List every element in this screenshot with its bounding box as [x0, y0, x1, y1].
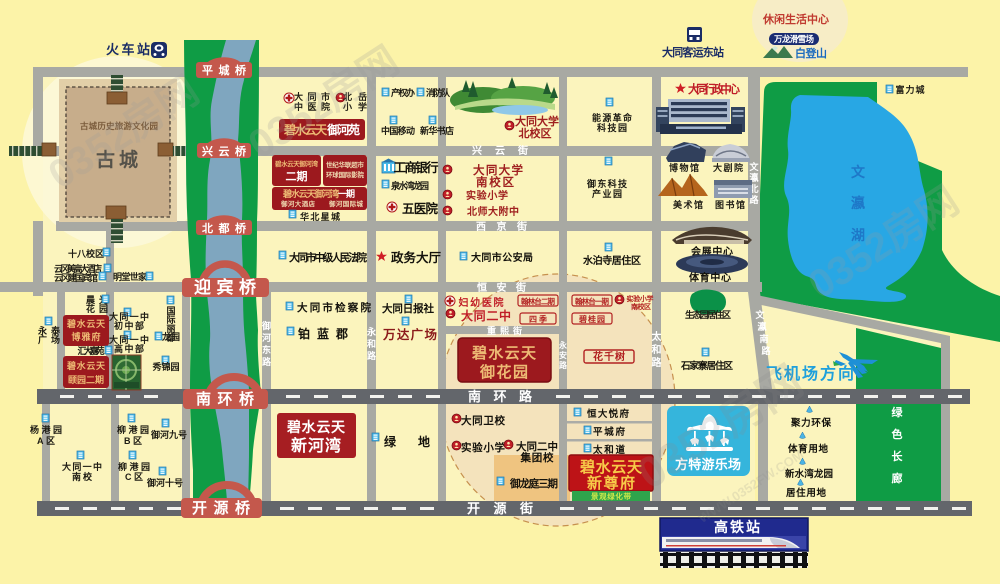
svg-text:新河湾: 新河湾: [291, 436, 341, 455]
svg-text:永和路: 永和路: [366, 326, 377, 361]
svg-text:大同大学: 大同大学: [473, 163, 524, 177]
svg-text:十八校区: 十八校区: [68, 248, 104, 259]
svg-text:瀛: 瀛: [850, 195, 865, 211]
svg-text:政务大厅: 政务大厅: [391, 250, 441, 265]
svg-text:实验小学: 实验小学: [627, 294, 654, 303]
svg-text:迎宾桥: 迎宾桥: [194, 277, 257, 297]
svg-text:铂蓝郡: 铂蓝郡: [298, 326, 354, 341]
svg-text:博雅府: 博雅府: [72, 331, 101, 342]
svg-text:汇大嘉苑: 汇大嘉苑: [78, 345, 105, 356]
svg-text:碧水云天: 碧水云天: [66, 318, 106, 329]
svg-text:翰林台二期: 翰林台二期: [521, 296, 556, 306]
svg-text:颐园二期: 颐园二期: [68, 374, 104, 385]
svg-text:御河九号: 御河九号: [150, 429, 187, 440]
svg-text:B区: B区: [124, 436, 142, 446]
svg-text:翰林台一期: 翰林台一期: [575, 296, 610, 306]
svg-text:开源桥: 开源桥: [192, 499, 251, 517]
svg-text:太和道: 太和道: [593, 444, 625, 456]
svg-text:大剧院: 大剧院: [713, 162, 743, 173]
svg-text:大同客运东站: 大同客运东站: [662, 45, 724, 59]
svg-text:新水湾龙园: 新水湾龙园: [785, 468, 833, 480]
svg-text:华北星城: 华北星城: [300, 211, 340, 222]
svg-text:御东科技: 御东科技: [586, 178, 628, 189]
svg-text:恒大悦府: 恒大悦府: [587, 408, 629, 420]
svg-text:北都桥: 北都桥: [202, 221, 247, 235]
svg-text:南校区: 南校区: [476, 175, 515, 189]
svg-text:富力城: 富力城: [896, 84, 925, 95]
svg-text:西京街: 西京街: [476, 220, 536, 233]
svg-text:兴云街: 兴云街: [472, 144, 538, 157]
svg-text:大同行政中心: 大同行政中心: [688, 82, 741, 96]
svg-text:兴云桥: 兴云桥: [202, 144, 247, 158]
svg-text:御河国际城: 御河国际城: [328, 199, 364, 208]
svg-text:世纪华联超市: 世纪华联超市: [326, 160, 365, 169]
svg-text:实验小学: 实验小学: [461, 441, 506, 454]
svg-text:高中部: 高中部: [114, 343, 144, 354]
svg-text:美术馆: 美术馆: [673, 199, 703, 210]
svg-text:北师大附中: 北师大附中: [467, 205, 519, 218]
svg-text:中国移动: 中国移动: [381, 125, 415, 136]
svg-text:大同日报社: 大同日报社: [382, 302, 435, 315]
svg-text:龙园: 龙园: [161, 331, 180, 342]
svg-text:明堂世家: 明堂世家: [113, 271, 148, 282]
svg-text:生态园居住区: 生态园居住区: [685, 309, 731, 320]
svg-text:石家寨居住区: 石家寨居住区: [680, 360, 733, 372]
svg-text:高铁站: 高铁站: [714, 519, 760, 535]
svg-text:C区: C区: [125, 472, 143, 482]
svg-text:大同大学: 大同大学: [515, 114, 559, 128]
svg-text:御河十号: 御河十号: [146, 477, 183, 488]
svg-text:五医院: 五医院: [402, 201, 438, 216]
svg-text:开源街: 开源街: [467, 501, 545, 516]
svg-text:聚力环保: 聚力环保: [790, 417, 831, 429]
svg-text:御龙庭三期: 御龙庭三期: [509, 477, 558, 490]
svg-text:集团校: 集团校: [520, 451, 555, 464]
svg-text:四季: 四季: [529, 314, 548, 324]
svg-text:产业园: 产业园: [592, 188, 622, 199]
svg-text:水泊寺居住区: 水泊寺居住区: [582, 254, 641, 267]
svg-text:杨港园: 杨港园: [30, 424, 62, 435]
svg-text:御河大酒店: 御河大酒店: [280, 199, 316, 208]
svg-text:能源革命: 能源革命: [592, 112, 633, 123]
svg-text:产权办: 产权办: [391, 87, 415, 98]
svg-text:大同市中级人民法院: 大同市中级人民法院: [289, 251, 368, 264]
svg-text:大同二中: 大同二中: [461, 308, 511, 323]
svg-text:南环桥: 南环桥: [196, 390, 255, 408]
svg-text:初中部: 初中部: [114, 320, 144, 331]
svg-text:科技园: 科技园: [597, 122, 627, 133]
svg-text:御花园: 御花园: [479, 363, 528, 381]
svg-text:白登山: 白登山: [795, 46, 827, 60]
svg-text:博物馆: 博物馆: [669, 162, 699, 173]
svg-text:新尊府: 新尊府: [587, 474, 635, 492]
svg-text:碧水云天: 碧水云天: [66, 360, 106, 371]
svg-text:南校: 南校: [72, 471, 93, 482]
svg-text:绿: 绿: [384, 434, 397, 449]
svg-text:云冈建国宾馆: 云冈建国宾馆: [54, 272, 98, 283]
svg-text:消防队: 消防队: [426, 87, 451, 98]
svg-text:文: 文: [851, 164, 866, 180]
svg-text:南校区: 南校区: [631, 302, 651, 311]
svg-text:实验小学: 实验小学: [466, 189, 508, 202]
svg-text:环球国际影院: 环球国际影院: [326, 170, 365, 179]
svg-text:秀锦园: 秀锦园: [152, 361, 180, 372]
svg-text:景观绿化带: 景观绿化带: [591, 491, 632, 501]
svg-text:居住用地: 居住用地: [786, 487, 826, 499]
svg-text:恒安街: 恒安街: [477, 281, 535, 294]
svg-text:泉水湾龙园: 泉水湾龙园: [390, 180, 429, 191]
svg-text:碧水云天御河湾: 碧水云天御河湾: [274, 159, 319, 168]
svg-text:碧桂园: 碧桂园: [578, 314, 605, 324]
svg-text:南环路: 南环路: [468, 389, 544, 404]
svg-text:重熙街: 重熙街: [487, 325, 527, 336]
svg-text:大同卫校: 大同卫校: [461, 414, 506, 427]
svg-text:火车站: 火车站: [106, 42, 150, 57]
svg-text:体育中心: 体育中心: [689, 271, 731, 284]
svg-text:工商银行: 工商银行: [394, 160, 439, 175]
svg-text:休闲生活中心: 休闲生活中心: [762, 12, 829, 26]
svg-text:碧水云天御河湾一期: 碧水云天御河湾一期: [282, 188, 355, 199]
svg-text:碧水云天: 碧水云天: [286, 419, 346, 435]
svg-text:北校区: 北校区: [519, 126, 552, 140]
svg-text:地: 地: [418, 434, 430, 449]
svg-text:A区: A区: [37, 436, 55, 446]
svg-text:大同市公安局: 大同市公安局: [471, 251, 533, 264]
svg-text:图书馆: 图书馆: [715, 199, 745, 210]
svg-text:花千树: 花千树: [593, 350, 625, 363]
svg-text:万龙滑雪场: 万龙滑雪场: [773, 34, 814, 44]
svg-text:柳港园: 柳港园: [117, 424, 149, 435]
svg-text:新华书店: 新华书店: [420, 125, 454, 136]
svg-text:大同一中: 大同一中: [62, 461, 102, 472]
svg-text:平城桥: 平城桥: [202, 63, 247, 77]
svg-text:柳港园: 柳港园: [118, 461, 150, 472]
svg-text:平城府: 平城府: [593, 426, 625, 438]
svg-text:太和路: 太和路: [651, 330, 663, 369]
svg-text:二期: 二期: [286, 169, 308, 183]
svg-text:永安路: 永安路: [558, 340, 568, 370]
svg-text:碧水云天: 碧水云天: [471, 344, 537, 362]
